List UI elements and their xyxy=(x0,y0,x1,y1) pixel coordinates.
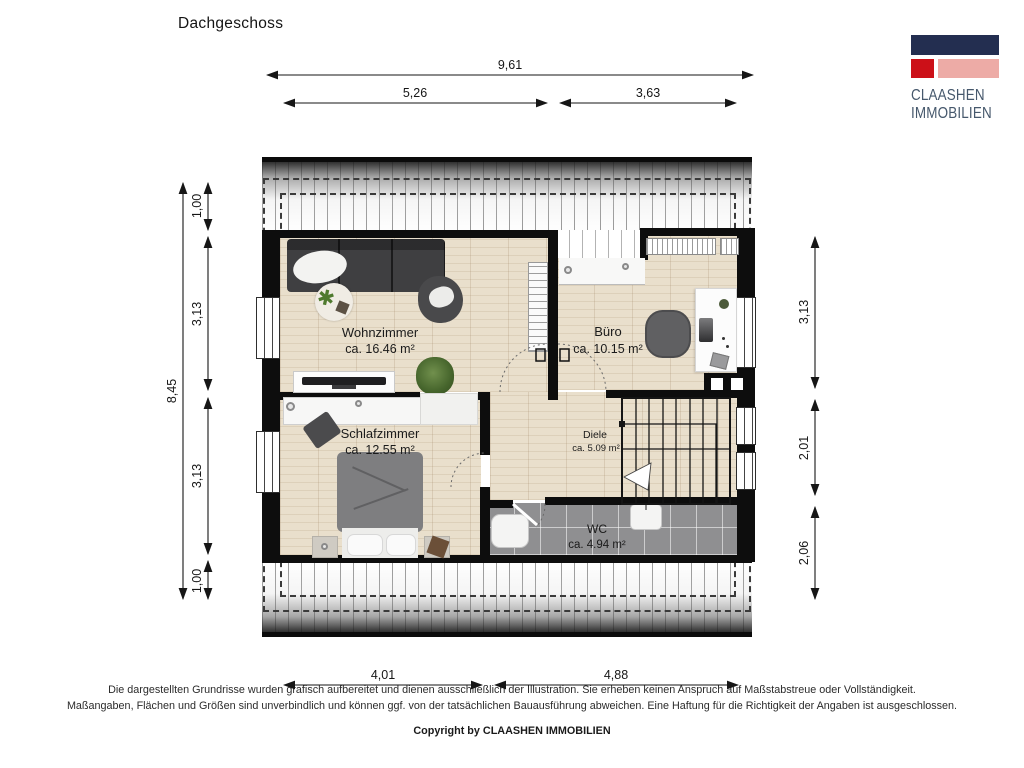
logo-company-type: IMMOBILIEN xyxy=(911,105,992,123)
disclaimer-line-2: Maßangaben, Flächen und Größen sind unve… xyxy=(0,700,1024,712)
logo-red-block xyxy=(911,59,934,78)
dim-left-total: 8,45 xyxy=(165,379,179,403)
wall-diele-schlafzimmer-b xyxy=(480,487,490,562)
dim-left-seg1: 1,00 xyxy=(190,194,204,218)
desk-plant xyxy=(719,299,729,309)
dim-right-seg2: 2,01 xyxy=(797,436,811,460)
dim-top-right: 3,63 xyxy=(636,86,660,100)
logo-pink-block xyxy=(938,59,999,78)
tv-stand xyxy=(332,385,356,389)
wohnzimmer-label: Wohnzimmer xyxy=(342,325,418,340)
wc-label: WC xyxy=(587,522,607,536)
dim-left-seg4: 1,00 xyxy=(190,569,204,593)
diele-label: Diele xyxy=(583,429,607,441)
window-stairwell-1 xyxy=(736,407,756,445)
copyright-text: Copyright by CLAASHEN IMMOBILIEN xyxy=(0,725,1024,737)
dim-right-seg1: 3,13 xyxy=(797,300,811,324)
radiator-1 xyxy=(646,238,716,255)
diele-area: ca. 5.09 m² xyxy=(572,443,620,454)
schlafzimmer-area: ca. 12.55 m² xyxy=(345,443,414,457)
bookshelf xyxy=(528,262,548,352)
wall-top-wohnzimmer xyxy=(262,230,558,238)
disclaimer-line-1: Die dargestellten Grundrisse wurden graf… xyxy=(0,684,1024,696)
nightstand-knob xyxy=(321,543,328,550)
wohnzimmer-area: ca. 16.46 m² xyxy=(345,342,414,356)
wall-opening-glass-2 xyxy=(731,378,743,390)
buero-label: Büro xyxy=(594,324,621,339)
dim-left-seg2: 3,13 xyxy=(190,302,204,326)
window-schlafzimmer xyxy=(256,431,280,493)
dormer-roof-strip xyxy=(556,230,640,258)
desk-dot-2 xyxy=(726,345,729,348)
wc-area: ca. 4.94 m² xyxy=(568,539,626,551)
schlafzimmer-label: Schlafzimmer xyxy=(341,426,420,441)
monitor xyxy=(699,318,713,342)
window-stairwell-2 xyxy=(736,452,756,490)
window-buero xyxy=(736,297,756,368)
dim-left-seg3: 3,13 xyxy=(190,464,204,488)
wardrobe-niche xyxy=(420,393,478,425)
dresser-knob-2 xyxy=(622,263,629,270)
radiator-2 xyxy=(720,238,739,255)
tv xyxy=(302,377,386,385)
wc-basin xyxy=(491,514,529,548)
desk-dot-1 xyxy=(722,337,725,340)
buero-dresser xyxy=(559,258,645,285)
wc-tap xyxy=(645,504,647,510)
wardrobe-knob-2 xyxy=(355,400,362,407)
bed-pillow-2 xyxy=(386,534,416,556)
buero-area: ca. 10.15 m² xyxy=(573,342,642,356)
wall-opening-glass-1 xyxy=(711,378,723,390)
page-title: Dachgeschoss xyxy=(178,15,283,33)
dim-bottom-left: 4,01 xyxy=(371,668,395,682)
dim-top-left: 5,26 xyxy=(403,86,427,100)
dim-top-total: 9,61 xyxy=(498,58,522,72)
logo-navy-block xyxy=(911,35,999,55)
logo-company-name: CLAASHEN xyxy=(911,87,985,105)
dresser-knob-1 xyxy=(564,266,572,274)
floorplan-page: Dachgeschoss CLAASHEN IMMOBILIEN ✱ xyxy=(0,0,1024,768)
office-chair xyxy=(645,310,691,358)
wardrobe xyxy=(283,397,423,425)
bed xyxy=(337,452,423,532)
wall-wc-top-a xyxy=(480,500,513,508)
large-plant xyxy=(416,357,454,395)
bed-pillow-1 xyxy=(347,534,383,556)
window-wohnzimmer xyxy=(256,297,280,359)
wall-diele-schlafzimmer-a xyxy=(480,392,490,455)
wall-wohnzimmer-buero xyxy=(548,230,558,400)
wardrobe-knob-1 xyxy=(286,402,295,411)
dim-bottom-right: 4,88 xyxy=(604,668,628,682)
wall-top-buero xyxy=(640,228,752,236)
dim-right-seg3: 2,06 xyxy=(797,541,811,565)
